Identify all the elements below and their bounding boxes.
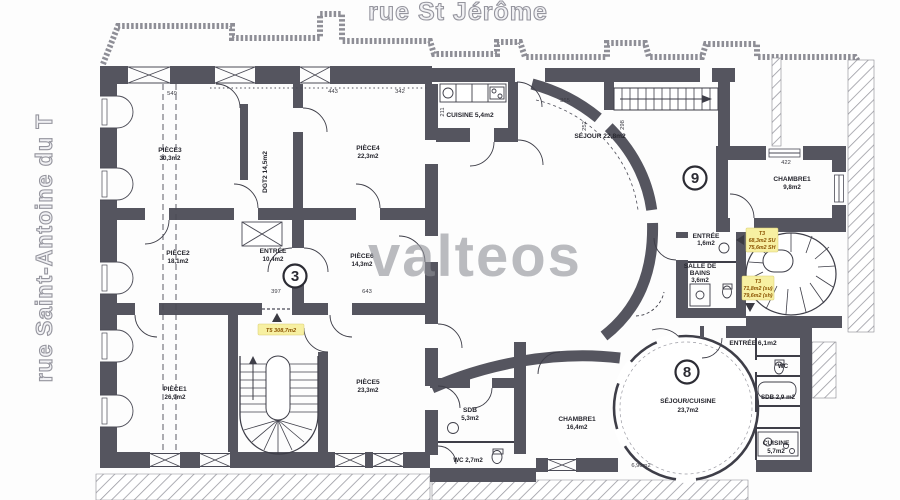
room-label-sdb-u9-l1: SALLE DE [684,263,717,270]
neighbor-building-hatch-bottom-right [432,480,748,500]
window-top-3 [300,67,330,83]
tag-t5: T5 308,7m2 [266,328,297,334]
room-area-sejour-u8: 23,7m2 [678,407,700,414]
room-label-sejour-top: SÉJOUR 22,8m2 [574,131,626,140]
room-label-entree-u8: ENTRÉE 6,1m2 [729,338,777,347]
room-label-piece5: PIÈCE5 [356,377,380,386]
dim-690: 6,90m2 [631,463,650,469]
tag-t3-lower-l2: 71,8m2 (su) [743,286,772,292]
room-area-chambre-u8: 16,4m2 [567,424,589,431]
stair-straight [614,88,718,110]
room-label-piece4: PIÈCE4 [356,143,380,152]
room-area-piece1: 26,9m2 [165,394,187,401]
window-left-2 [100,168,133,200]
window-left-4 [100,330,133,362]
floor-plan-drawing: 549 443 342 365 422 397 643 211 252 298 … [0,0,900,500]
dim-549: 549 [167,91,177,97]
window-top-1 [128,67,170,83]
room-area-piece4: 22,3m2 [358,153,380,160]
hatch-right-lower [812,342,836,398]
floor-plan-page: 549 443 342 365 422 397 643 211 252 298 … [0,0,900,500]
room-label-sdb-u8: SDB 2,9 m2 [761,394,796,401]
kitchen-counter [440,84,506,102]
window-left-3 [100,262,133,294]
dim-298: 298 [620,120,626,130]
window-chambre9-right [835,175,844,202]
dim-422: 422 [781,160,791,166]
room-label-piece2: PIÈCE2 [166,248,190,257]
room-label-dgt2: DGT2 14,5m2 [262,151,269,193]
watermark: valteos [368,224,582,289]
window-left-5 [100,395,133,427]
chimney-hatch [772,58,781,146]
neighbor-building-hatch-right [848,60,874,332]
toilet-unit9 [723,284,733,298]
unit-marker-8: 8 [683,364,691,381]
room-label-cuisine-u8: CUISINE [763,440,790,447]
triangle-up-icon [272,313,282,322]
sink-unit9 [719,243,729,253]
room-area-cuisine-u8: 5,7m2 [767,448,785,455]
dim-342: 342 [395,89,405,95]
window-chambre8 [548,460,576,471]
room-area-chambre-u9: 9,8m2 [783,184,801,191]
dim-211: 211 [440,107,446,116]
tag-t3-upper-l1: T3 [759,231,765,237]
dim-252: 252 [582,121,588,131]
room-label-chambre-u8: CHAMBRE1 [558,416,596,423]
window-left-1 [100,96,133,128]
window-bottom-1 [150,454,180,467]
toilet-wc-u3 [492,449,503,464]
stair-central [240,356,318,454]
neighbor-building-hatch-bottom-left [96,474,430,500]
room-label-cuisine-top: CUISINE 5,4m2 [446,112,494,119]
room-label-wc-u8: WC [778,363,789,370]
tag-t3-upper-l2: 68,3m2 SU [749,238,776,244]
room-label-entree-u3: ENTRÉE [260,246,287,255]
window-chambre9-top [769,149,800,157]
triangle-down-icon [745,303,755,312]
street-label-top: rue St Jérôme [368,0,548,26]
room-area-entree-u9: 1,6m2 [697,240,715,247]
window-bottom-4 [373,454,403,467]
room-area-piece3: 30,3m2 [160,155,182,162]
window-bottom-2 [200,454,230,467]
room-label-wc-u3: WC 2,7m2 [453,457,483,464]
room-label-entree-u9: ENTRÉE [693,231,720,240]
room-area-piece2: 18,1m2 [168,258,190,265]
sink-sdb-u3 [448,423,459,434]
room-label-sdb-u9-l2: BAINS [690,270,711,277]
room-label-sejour-u8: SÉJOUR/CUISINE [660,396,716,405]
wardrobe-box [242,222,282,246]
unit-marker-9: 9 [691,170,699,187]
dim-643: 643 [362,289,372,295]
unit-marker-3: 3 [291,268,299,285]
room-label-piece1: PIÈCE1 [163,384,187,393]
tag-t3-lower-l1: T3 [755,279,761,285]
dim-397: 397 [271,289,281,295]
window-bottom-3 [335,454,365,467]
room-label-chambre-u9: CHAMBRE1 [773,176,811,183]
room-label-sdb-u3: SDB [463,407,477,414]
shower-unit9 [690,284,710,306]
window-top-2 [215,67,255,83]
street-label-left: rue Saint-Antoine du T [31,114,57,383]
room-label-piece3: PIÈCE3 [158,145,182,154]
room-area-sdb-u3: 5,3m2 [461,415,479,422]
tag-t3-lower-l3: 79,6m2 (sh) [743,293,772,299]
tag-t3-upper-l3: 75,6m2 SH [749,245,776,251]
dim-365: 365 [560,98,570,104]
room-area-piece5: 23,3m2 [358,387,380,394]
dim-443: 443 [328,89,338,95]
room-area-sdb-u9: 3,6m2 [691,277,709,284]
room-area-entree-u3: 10,4m2 [263,256,285,263]
